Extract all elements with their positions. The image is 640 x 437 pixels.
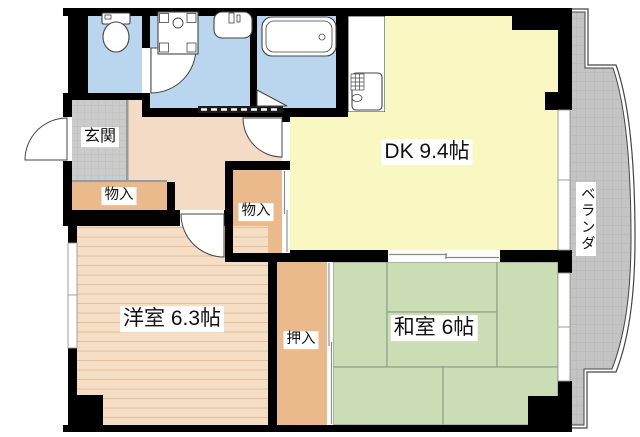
entrance-door-swing bbox=[25, 118, 67, 160]
floor-plan-drawing bbox=[0, 0, 640, 437]
kitchen-sink-icon bbox=[351, 73, 382, 110]
entrance-hall-step-line bbox=[126, 97, 129, 182]
dk-window-upper bbox=[558, 110, 570, 180]
western-room-window-lower bbox=[68, 295, 77, 348]
storage-1-label: 物入 bbox=[102, 187, 137, 205]
storage-2-label: 物入 bbox=[239, 203, 274, 221]
dk-floor-upper bbox=[385, 16, 558, 117]
dk-floor-lower bbox=[290, 112, 558, 250]
japanese-room-window-lower bbox=[558, 327, 570, 381]
veranda-label: ベランダ bbox=[576, 182, 596, 256]
western-room-window-upper bbox=[68, 243, 77, 296]
tatami-mats bbox=[333, 262, 558, 425]
vanity-sink-icon bbox=[214, 12, 252, 38]
floor-plan: DK 9.4帖 洋室 6.3帖 和室 6帖 玄関 物入 物入 押入 ベランダ bbox=[0, 0, 640, 437]
dk-door-opening bbox=[282, 122, 290, 161]
washing-machine-icon bbox=[158, 12, 198, 54]
western-room-label: 洋室 6.3帖 bbox=[120, 306, 224, 332]
japanese-room-window-upper bbox=[558, 273, 570, 327]
closet-label: 押入 bbox=[284, 331, 319, 349]
dk-japanese-sliding-door bbox=[388, 250, 500, 262]
entrance-label: 玄関 bbox=[81, 127, 119, 147]
japanese-room-label: 和室 6帖 bbox=[391, 315, 478, 341]
dk-window-lower bbox=[558, 180, 570, 250]
toilet-icon bbox=[102, 13, 130, 52]
toilet-door-opening bbox=[142, 48, 150, 93]
storage2-sliding-door bbox=[282, 170, 290, 253]
dk-room-label: DK 9.4帖 bbox=[381, 139, 472, 165]
washroom-sliding-door bbox=[198, 106, 283, 113]
entrance-bottom-step-line bbox=[72, 180, 167, 182]
closet-sliding-door bbox=[327, 262, 333, 425]
bathtub-icon bbox=[262, 17, 336, 56]
